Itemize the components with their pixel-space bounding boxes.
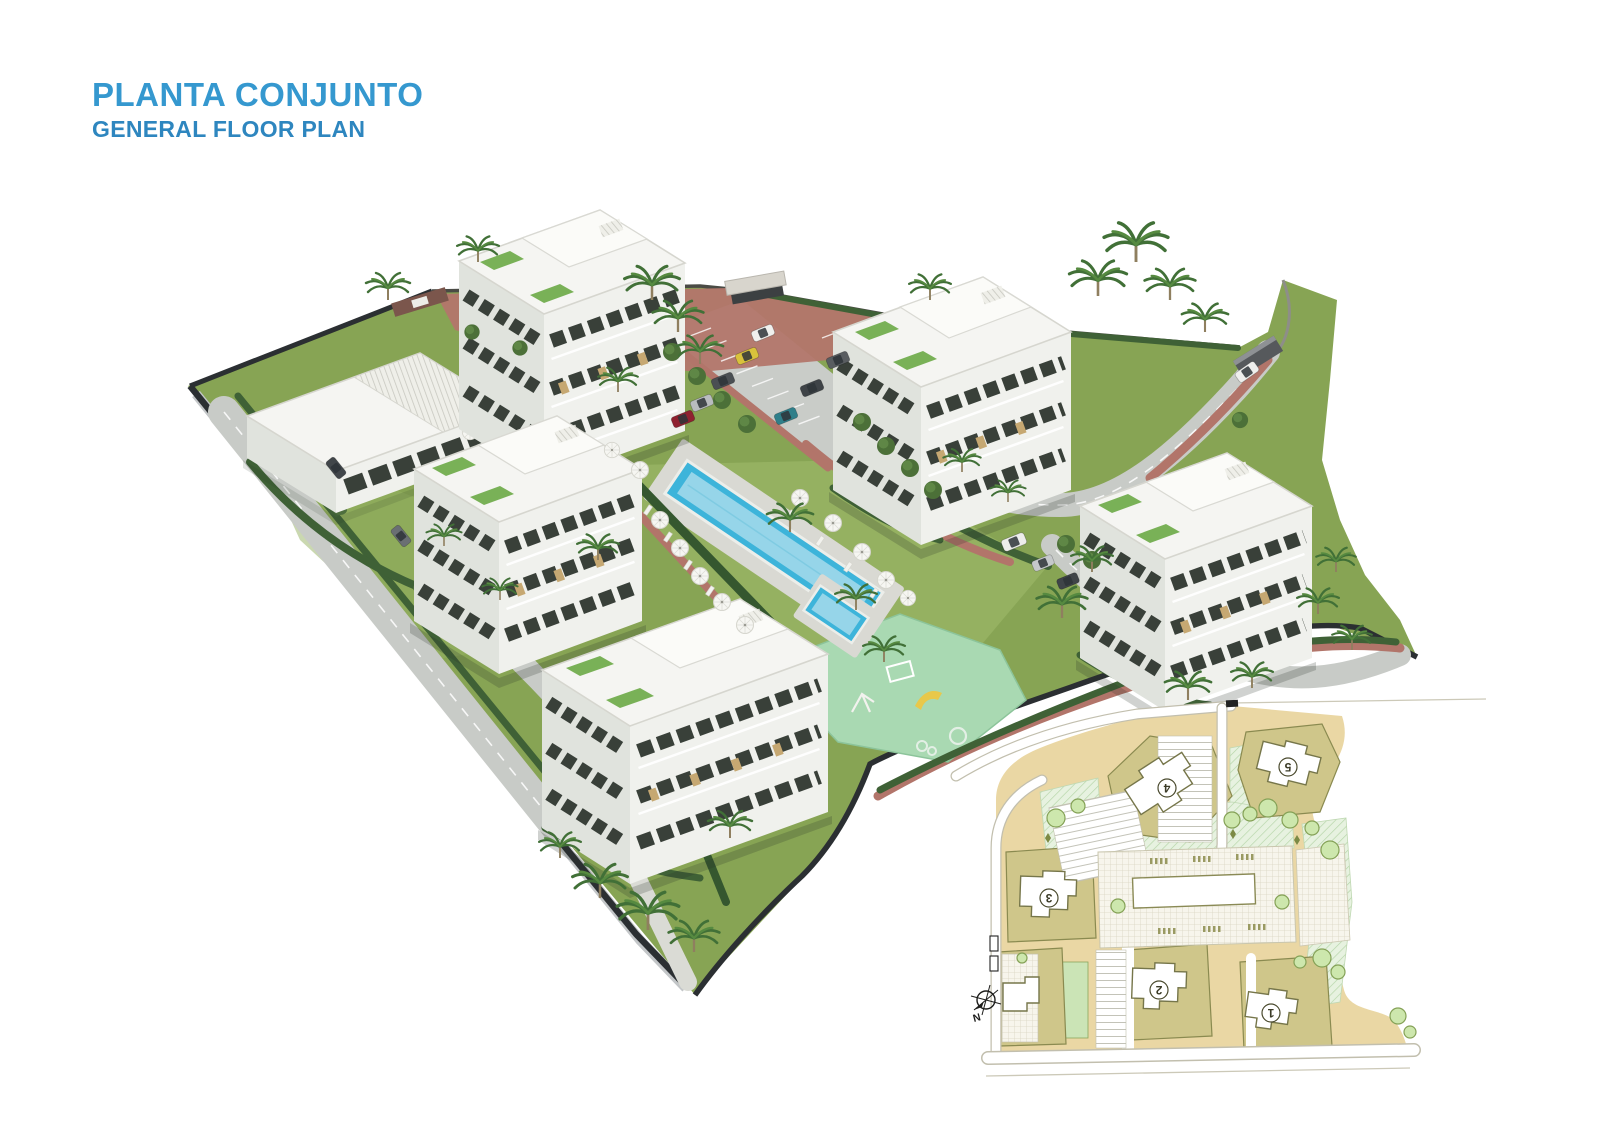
inset-building-label-5: 5	[1279, 758, 1297, 776]
inset-site-plan: 4 5 3 2 1 N	[956, 699, 1486, 1076]
svg-text:2: 2	[1155, 983, 1162, 997]
svg-text:4: 4	[1163, 781, 1170, 795]
north-label: N	[972, 1011, 982, 1025]
page-title: PLANTA CONJUNTO	[92, 78, 423, 111]
inset-gate-mark	[1226, 700, 1238, 708]
svg-text:3: 3	[1045, 891, 1052, 905]
page-subtitle: GENERAL FLOOR PLAN	[92, 118, 423, 141]
inset-pool	[1133, 874, 1256, 908]
page: PLANTA CONJUNTO GENERAL FLOOR PLAN	[0, 0, 1600, 1131]
header: PLANTA CONJUNTO GENERAL FLOOR PLAN	[92, 78, 423, 141]
inset-building-label-1: 1	[1262, 1004, 1280, 1022]
svg-text:1: 1	[1267, 1006, 1274, 1020]
inset-amenity-area	[1098, 844, 1350, 948]
svg-text:5: 5	[1284, 760, 1291, 774]
inset-building-label-3: 3	[1040, 889, 1058, 907]
inset-building-label-2: 2	[1150, 981, 1168, 999]
inset-building-label-4: 4	[1158, 779, 1176, 797]
site-render-canvas: 4 5 3 2 1 N	[0, 0, 1600, 1131]
